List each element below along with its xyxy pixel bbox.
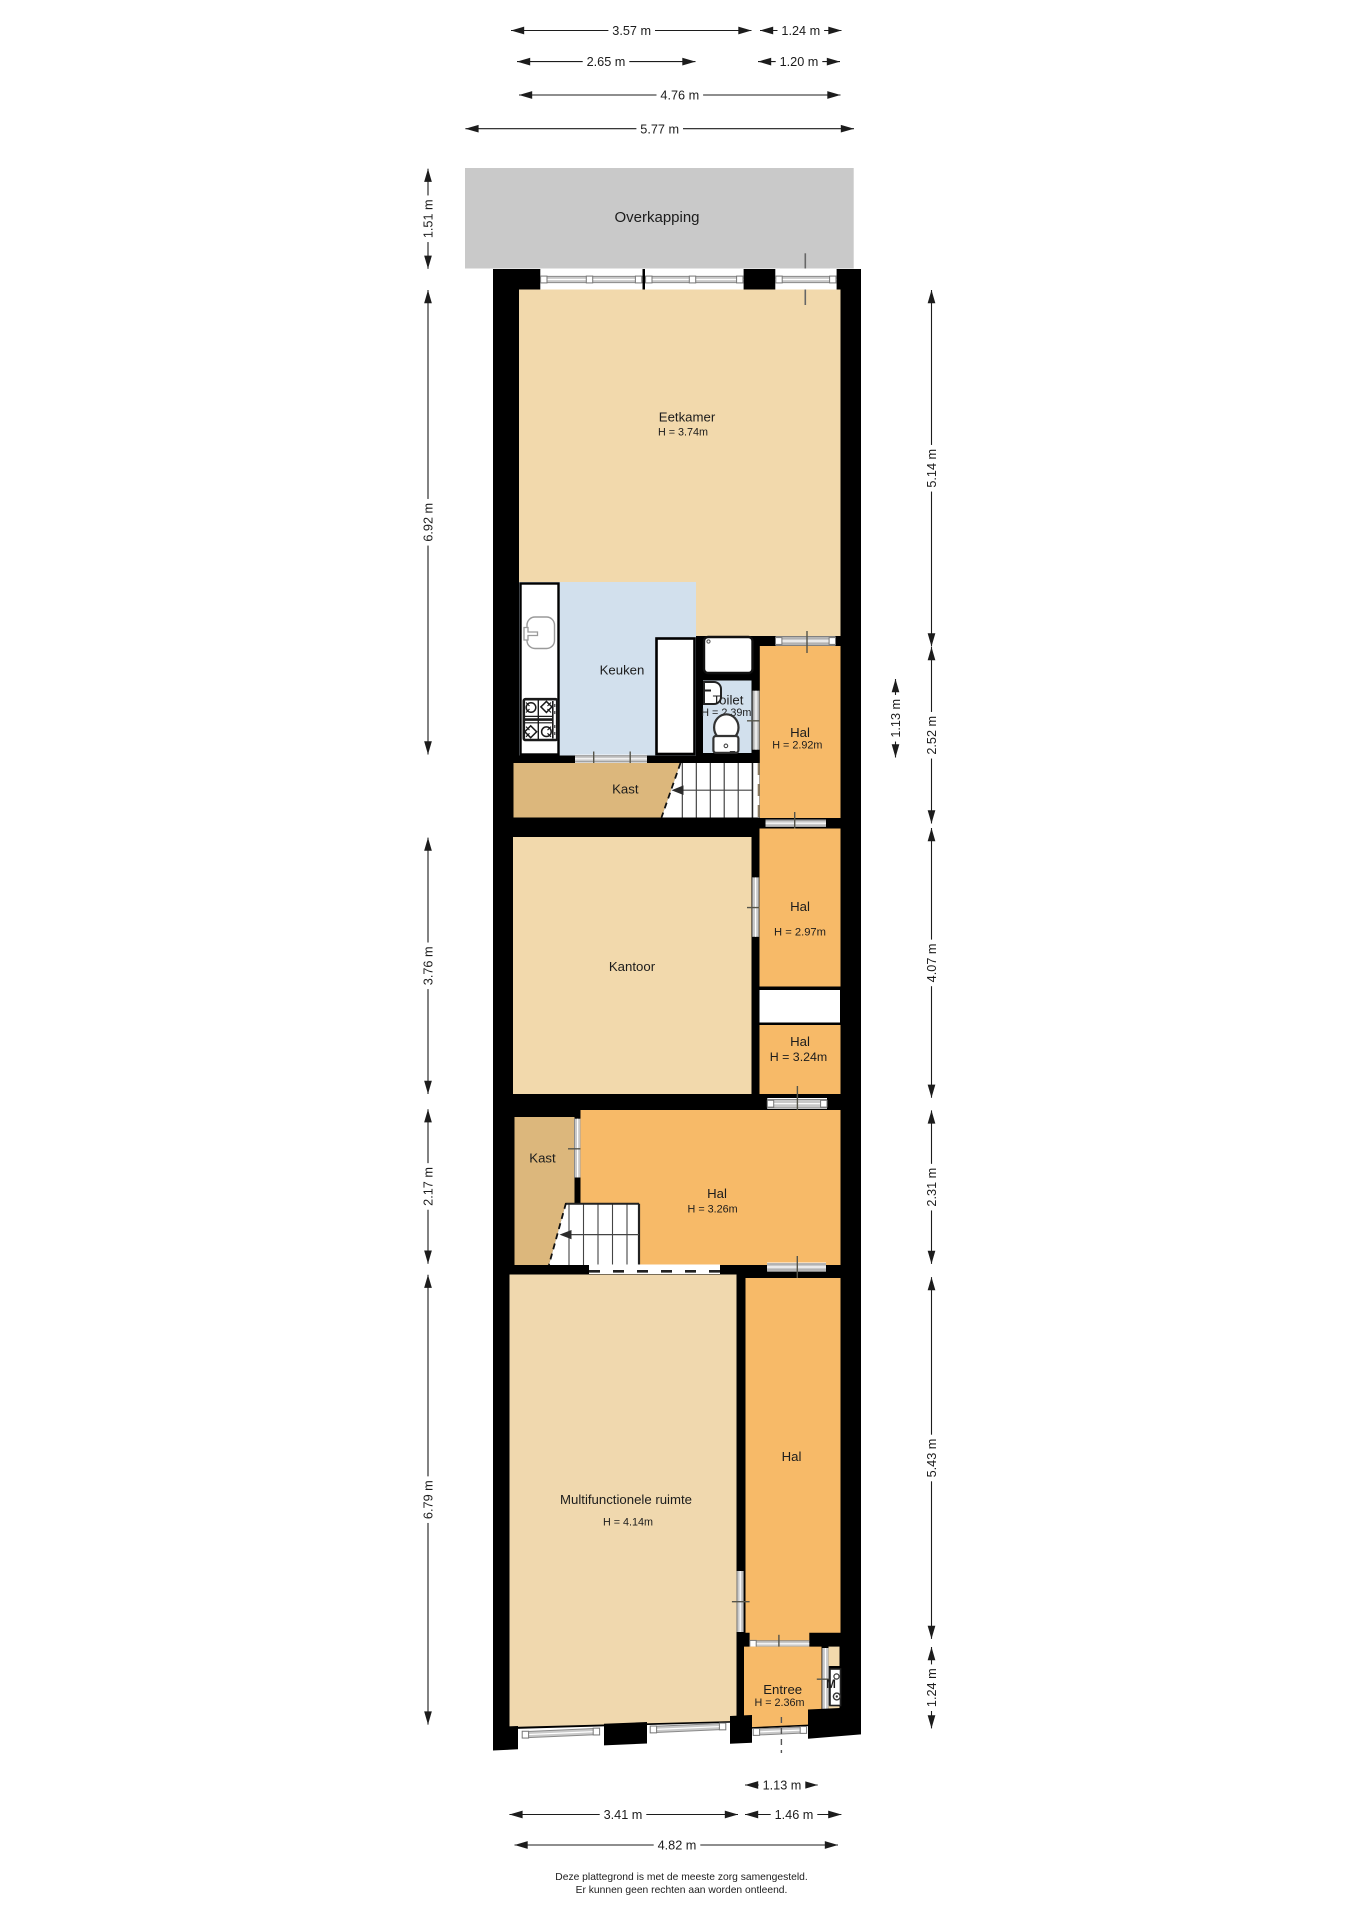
svg-text:4.07 m: 4.07 m <box>925 944 939 983</box>
svg-text:Hal: Hal <box>707 1186 727 1201</box>
svg-text:1.24 m: 1.24 m <box>925 1668 939 1707</box>
svg-text:Hal: Hal <box>790 1034 810 1049</box>
svg-text:5.43 m: 5.43 m <box>925 1439 939 1478</box>
svg-text:H = 3.74m: H = 3.74m <box>658 427 708 439</box>
svg-text:6.79 m: 6.79 m <box>422 1480 436 1519</box>
svg-text:3.41 m: 3.41 m <box>604 1808 643 1822</box>
svg-text:H = 3.24m: H = 3.24m <box>770 1050 828 1064</box>
svg-text:2.31 m: 2.31 m <box>925 1168 939 1207</box>
svg-text:3.76 m: 3.76 m <box>422 946 436 985</box>
svg-text:Deze plattegrond is met de mee: Deze plattegrond is met de meeste zorg s… <box>555 1872 807 1883</box>
svg-text:M: M <box>826 1679 836 1691</box>
svg-text:1.13 m: 1.13 m <box>889 699 903 738</box>
svg-text:1.24 m: 1.24 m <box>781 24 820 38</box>
svg-text:H = 3.26m: H = 3.26m <box>688 1204 738 1216</box>
svg-text:2.17 m: 2.17 m <box>422 1167 436 1206</box>
svg-text:1.13 m: 1.13 m <box>763 1779 802 1793</box>
svg-text:Toilet: Toilet <box>713 693 744 708</box>
svg-text:2.65 m: 2.65 m <box>587 55 626 69</box>
svg-text:Kantoor: Kantoor <box>609 959 656 974</box>
svg-text:5.77 m: 5.77 m <box>640 122 679 136</box>
svg-text:H = 2.92m: H = 2.92m <box>772 740 822 752</box>
svg-text:H = 2.97m: H = 2.97m <box>774 927 826 939</box>
svg-text:H = 2.36m: H = 2.36m <box>754 1697 804 1709</box>
svg-text:Hal: Hal <box>782 1449 802 1464</box>
svg-text:5.14 m: 5.14 m <box>925 449 939 488</box>
svg-text:1.46 m: 1.46 m <box>775 1808 814 1822</box>
svg-text:H = 4.14m: H = 4.14m <box>603 1517 653 1529</box>
svg-text:Multifunctionele ruimte: Multifunctionele ruimte <box>560 1492 692 1507</box>
svg-text:Er kunnen geen rechten aan wor: Er kunnen geen rechten aan worden ontlee… <box>576 1885 788 1896</box>
svg-text:1.51 m: 1.51 m <box>422 199 436 238</box>
svg-text:Kast: Kast <box>529 1151 556 1166</box>
svg-text:4.76 m: 4.76 m <box>660 89 699 103</box>
svg-text:1.20 m: 1.20 m <box>780 55 819 69</box>
svg-text:Overkapping: Overkapping <box>614 209 699 226</box>
svg-text:Keuken: Keuken <box>600 663 645 678</box>
svg-text:4.82 m: 4.82 m <box>658 1839 697 1853</box>
svg-text:Hal: Hal <box>790 899 810 914</box>
svg-text:Entree: Entree <box>763 1682 802 1697</box>
svg-text:3.57 m: 3.57 m <box>612 24 651 38</box>
svg-text:Hal: Hal <box>790 725 810 740</box>
svg-text:6.92 m: 6.92 m <box>422 503 436 542</box>
svg-text:Kast: Kast <box>612 782 639 797</box>
svg-text:Eetkamer: Eetkamer <box>659 410 716 425</box>
svg-text:2.52 m: 2.52 m <box>925 716 939 755</box>
